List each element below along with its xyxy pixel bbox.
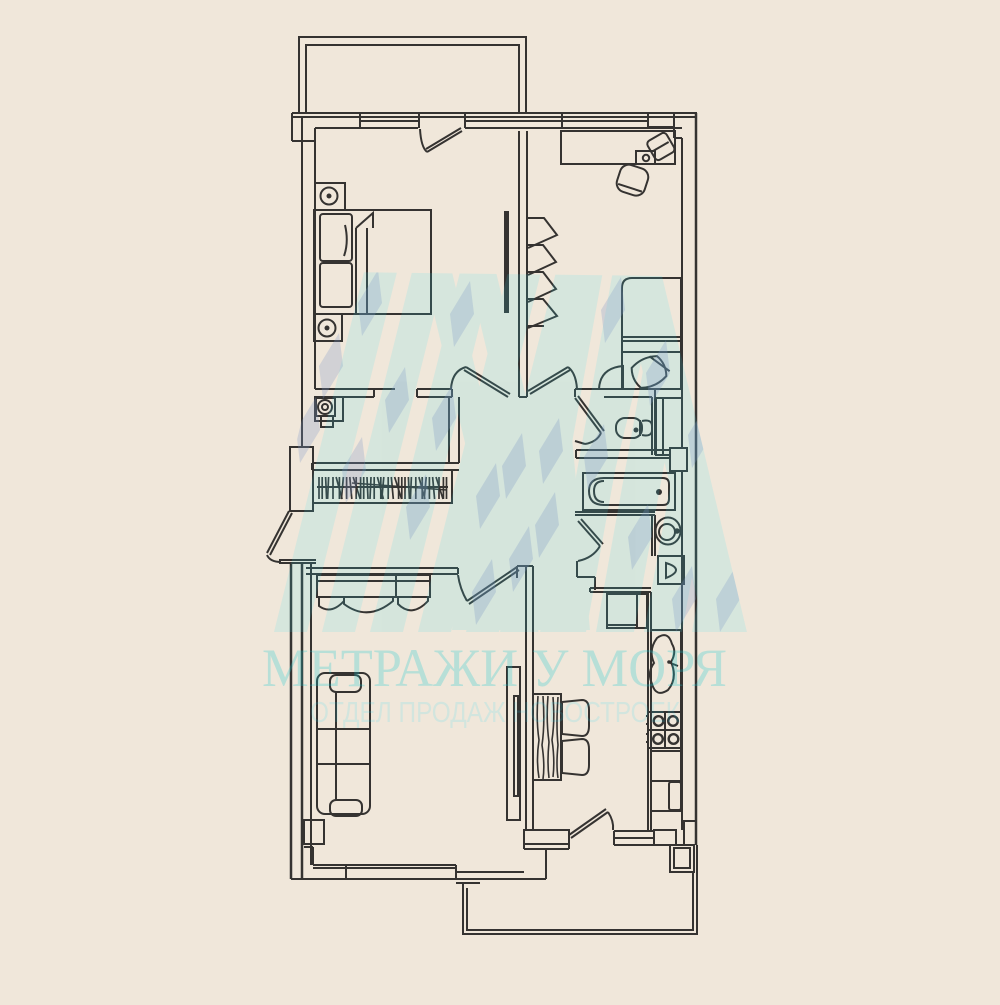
svg-text:МЕТРАЖИ У МОРЯ: МЕТРАЖИ У МОРЯ bbox=[262, 638, 727, 698]
svg-text:ОТДЕЛ ПРОДАЖ НОВОСТРОЕК: ОТДЕЛ ПРОДАЖ НОВОСТРОЕК bbox=[310, 697, 680, 729]
